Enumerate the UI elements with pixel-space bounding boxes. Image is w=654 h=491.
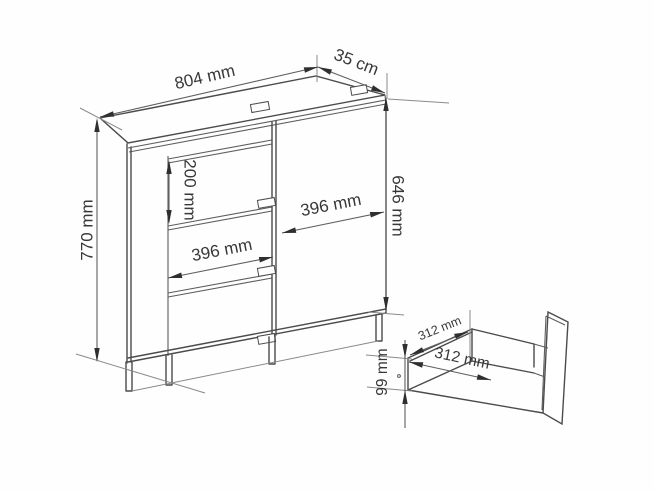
drawer-bottom-front-edge	[408, 390, 543, 413]
cabinet-leg-mid-left	[166, 355, 172, 385]
dim-door-width: 396 mm	[282, 190, 384, 233]
drawer1-handle-notch	[250, 101, 269, 112]
drawer-front-panel	[543, 312, 568, 424]
dim-overall-width: 804 mm	[100, 61, 318, 117]
diagram-canvas: 804 mm 35 cm 770 mm 200 mm 6	[0, 0, 654, 491]
dim-overall-depth-label: 35 cm	[331, 45, 381, 79]
dim-drawer-inner-height: 99 mm	[374, 340, 408, 428]
cabinet-leg-front-right	[376, 314, 382, 341]
drawer2-handle-notch	[257, 197, 275, 208]
dim-top-drawer-height: 200 mm	[166, 159, 199, 224]
dimension-annotations: 804 mm 35 cm 770 mm 200 mm 6	[76, 45, 491, 428]
bottom-rail-notch	[257, 333, 275, 344]
drawer3-handle-notch	[257, 265, 275, 276]
dim-overall-height: 770 mm	[77, 118, 99, 362]
floor-line	[132, 341, 378, 391]
dim-drawer-inner-height-label: 99 mm	[374, 348, 391, 395]
dim-drawer-front-width: 396 mm	[168, 235, 273, 278]
furniture-dimension-diagram: 804 mm 35 cm 770 mm 200 mm 6	[0, 0, 654, 491]
cabinet-left-edge	[127, 144, 131, 363]
dim-door-height-label: 646 mm	[389, 175, 408, 236]
small-reference-dot	[398, 375, 401, 378]
dim-drawer-front-width-label: 396 mm	[190, 235, 254, 265]
drawer-gap-line-3	[168, 274, 272, 297]
dim-drawer-inner-width-label: 312 mm	[433, 344, 491, 372]
dim-overall-height-label: 770 mm	[77, 199, 96, 260]
cabinet-top-face	[100, 76, 385, 143]
dim-door-width-label: 396 mm	[299, 190, 363, 220]
center-divider	[272, 121, 276, 336]
cabinet-bottom-edge	[128, 309, 386, 362]
cabinet-drawing	[100, 76, 386, 391]
dim-top-drawer-height-label: 200 mm	[181, 159, 200, 220]
dim-door-height: 646 mm	[383, 97, 407, 311]
cabinet-leg-front-left	[126, 362, 132, 391]
